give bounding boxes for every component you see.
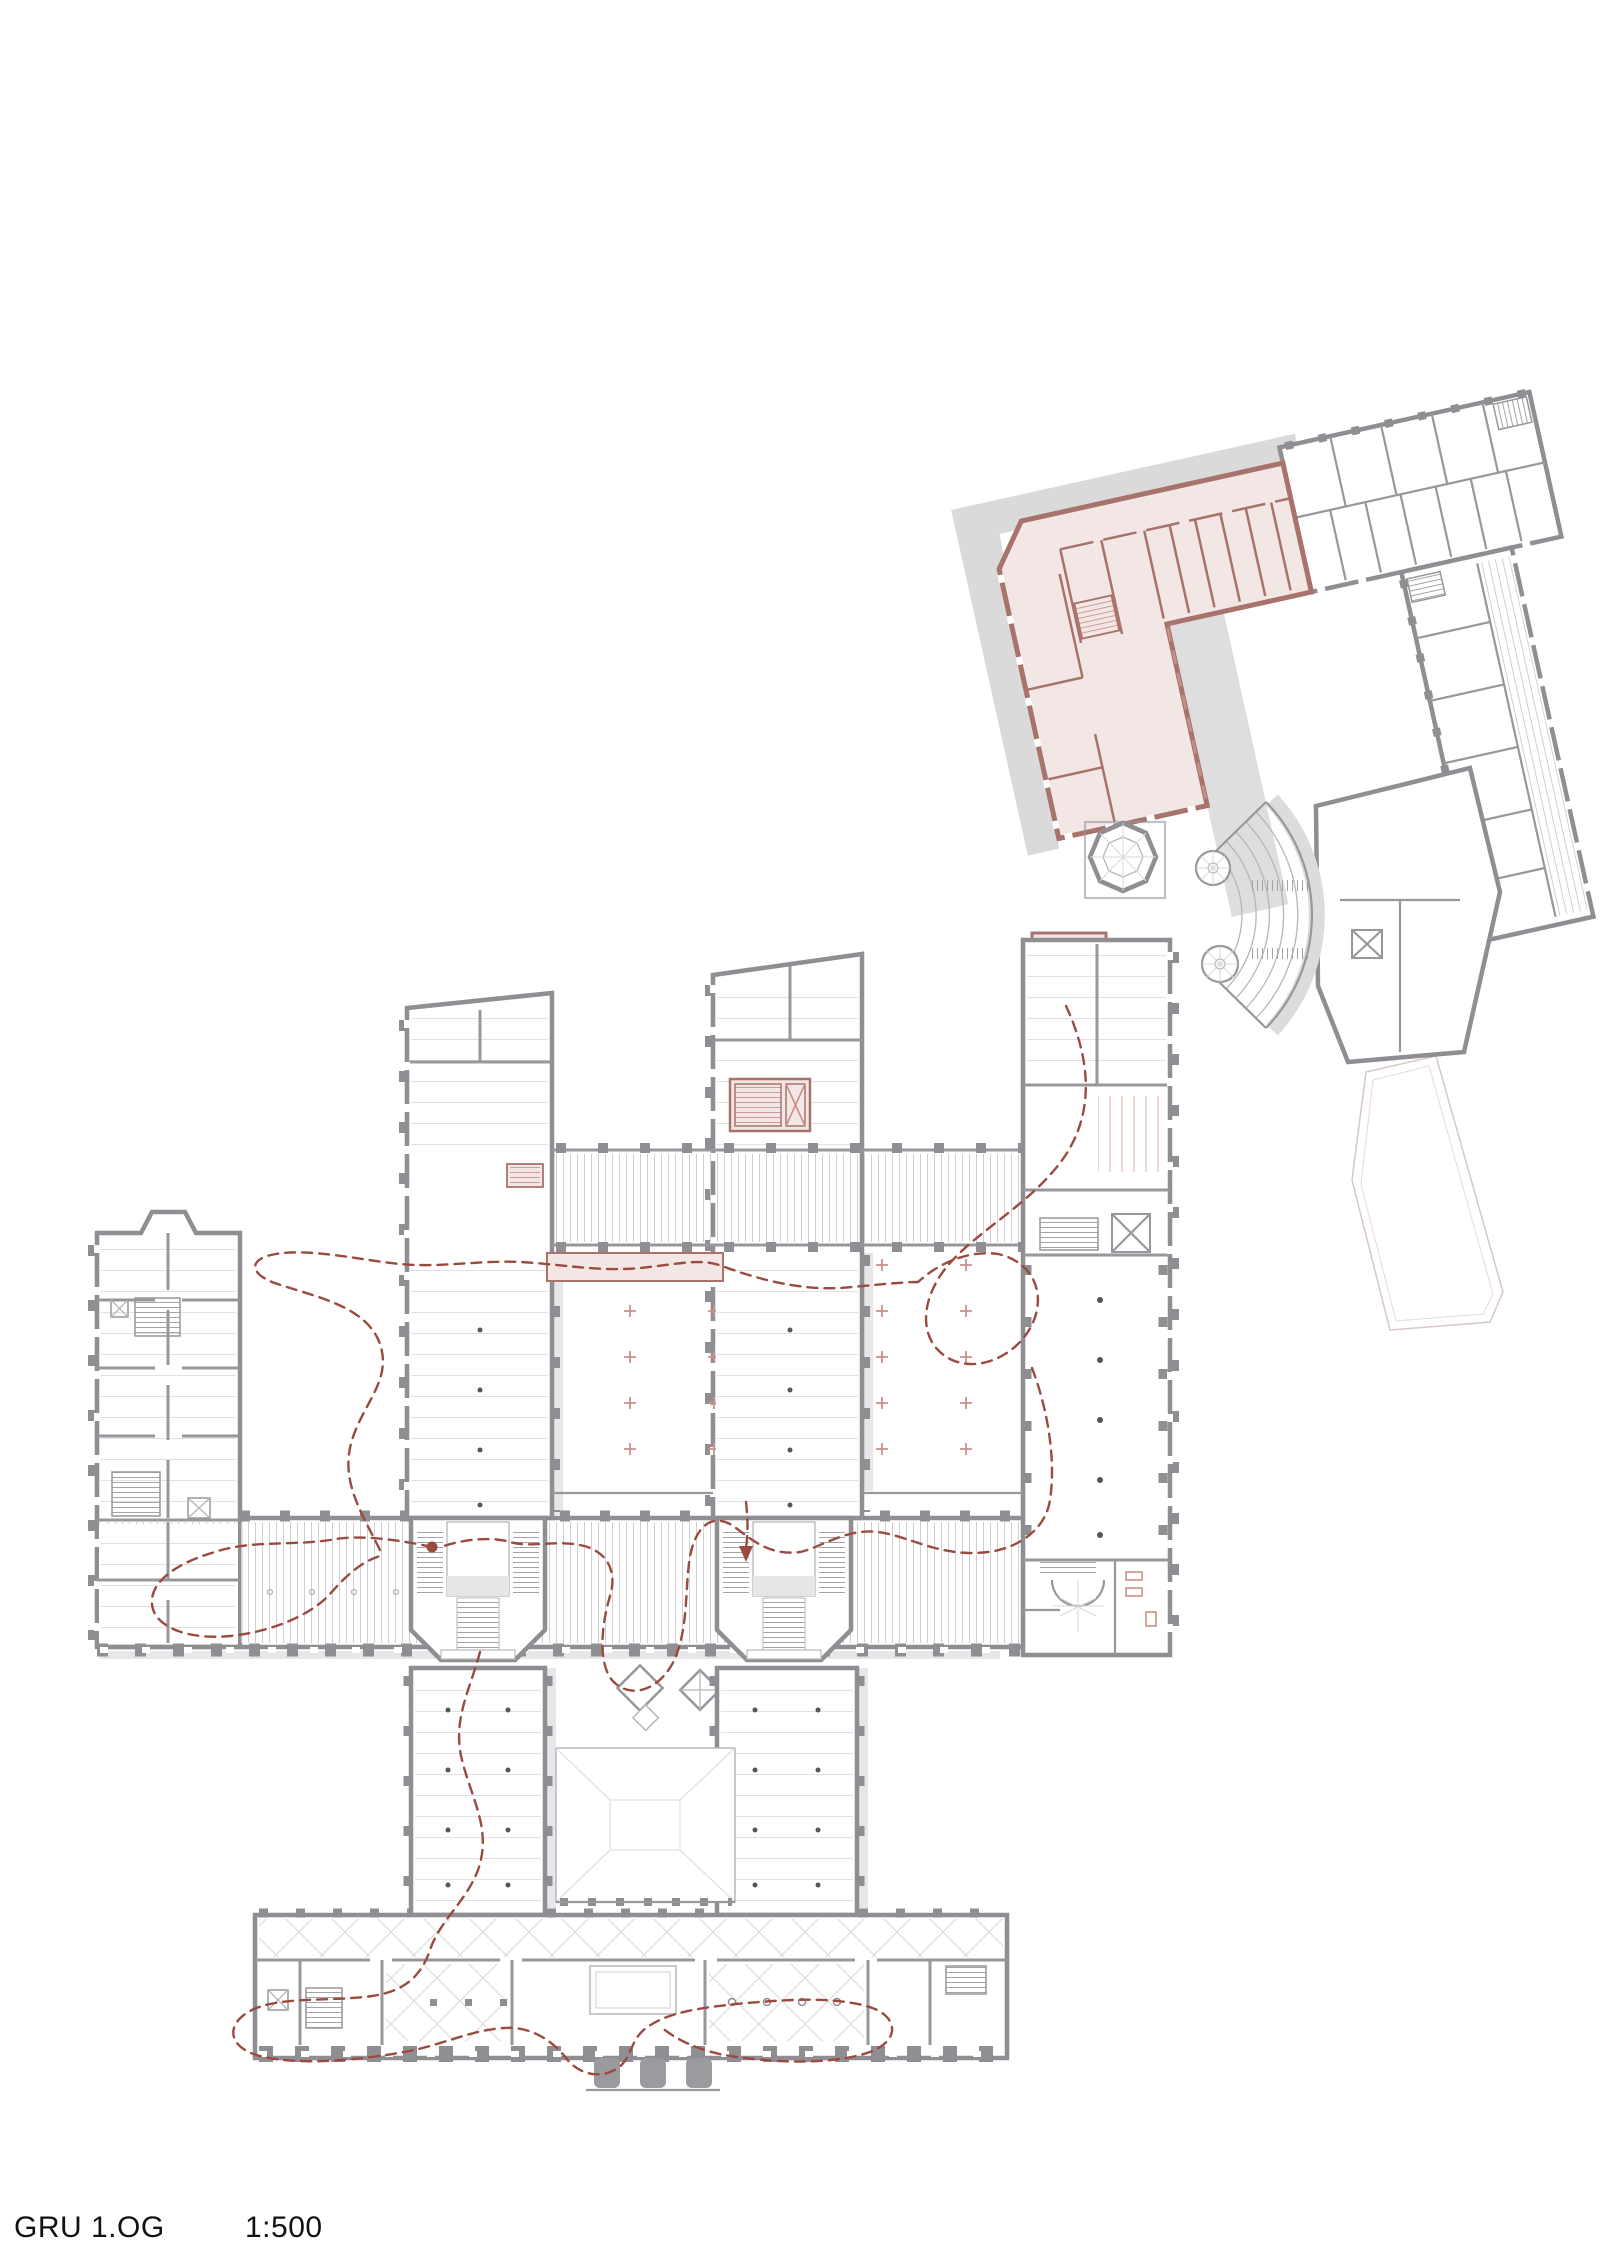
stair-icon: [306, 1988, 342, 2028]
new-stair-room: [730, 1079, 810, 1131]
central-courtyard: [556, 1748, 735, 1902]
aisle-stair-icon: [1252, 880, 1308, 891]
column: [465, 1999, 472, 2006]
stair-icon: [1040, 1218, 1098, 1250]
courtyard-east: [870, 1252, 1020, 1486]
courtyard-west: [547, 1253, 723, 1484]
site-outline: [1352, 1056, 1503, 1330]
drawing-scale: 1:500: [245, 2211, 323, 2244]
stair-icon: [735, 1084, 781, 1126]
main-building: [93, 940, 1174, 2090]
path-start-dot: [427, 1542, 438, 1553]
west-corridor: [97, 1516, 1170, 1650]
floor-plan: GRU 1.OG 1:500: [0, 0, 1600, 2261]
arm-south-east: [714, 1668, 860, 1915]
south-gallery: [255, 1913, 1007, 2058]
stair-icon: [1074, 595, 1119, 638]
diagonal-passage: [610, 1665, 675, 1730]
north-connector-corridor: [552, 1148, 1023, 1247]
column: [500, 1999, 507, 2006]
caption: GRU 1.OG 1:500: [14, 2211, 323, 2244]
existing-wing-rooms: [1279, 392, 1561, 592]
spiral-stair: [1196, 851, 1230, 885]
aisle-stair-icon: [1252, 948, 1308, 959]
drawing-sheet: GRU 1.OG 1:500: [0, 0, 1600, 2261]
arm-south-west: [408, 1668, 548, 1915]
arm-east-block: [1023, 940, 1174, 1655]
column: [430, 1999, 437, 2006]
drawing-title: GRU 1.OG: [14, 2211, 165, 2244]
stair-icon: [1040, 1562, 1096, 1574]
octagon-tower: [1085, 822, 1165, 898]
stair-icon: [112, 1472, 160, 1516]
new-wing-highlight: [990, 463, 1352, 838]
auditorium-shadow: [1272, 800, 1317, 1030]
stair-icon: [135, 1298, 180, 1336]
great-hall: [1316, 768, 1500, 1062]
stair-icon: [946, 1966, 986, 1994]
red-joist-floor: [1098, 1096, 1160, 1172]
arm-north-west: [404, 993, 555, 1518]
spiral-stair: [1202, 946, 1238, 982]
